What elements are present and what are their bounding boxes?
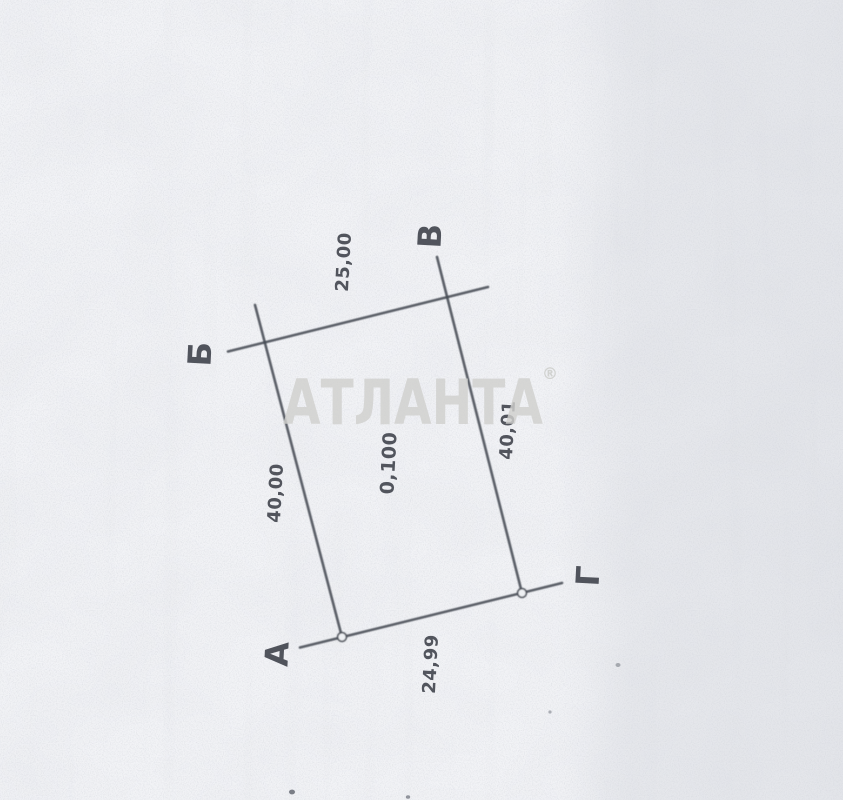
registered-trademark-icon: ®: [542, 364, 558, 383]
corner-label-v: В: [410, 223, 449, 249]
watermark-text: АТЛАНТА: [283, 366, 543, 439]
corner-label-g: Г: [568, 565, 607, 587]
paper-speck: [289, 790, 295, 795]
area-label: 0,100: [376, 431, 401, 495]
watermark: АТЛАНТА ®: [283, 364, 558, 439]
plot-sketch-canvas: Б В А Г 25,00 40,00 40,01 24,99 0,100 АТ…: [0, 0, 843, 800]
corner-label-b: Б: [180, 341, 219, 367]
corner-label-a: А: [257, 640, 296, 667]
scanned-plot-document: Б В А Г 25,00 40,00 40,01 24,99 0,100 АТ…: [0, 0, 843, 800]
side-length-bottom: 24,99: [419, 634, 443, 694]
paper-speck: [548, 710, 551, 713]
corner-g-marker: [518, 589, 527, 598]
corner-a-marker: [338, 633, 347, 642]
side-length-top: 25,00: [332, 232, 356, 292]
paper-speck: [406, 795, 410, 799]
paper-speck: [616, 663, 621, 667]
side-length-left: 40,00: [264, 463, 288, 523]
